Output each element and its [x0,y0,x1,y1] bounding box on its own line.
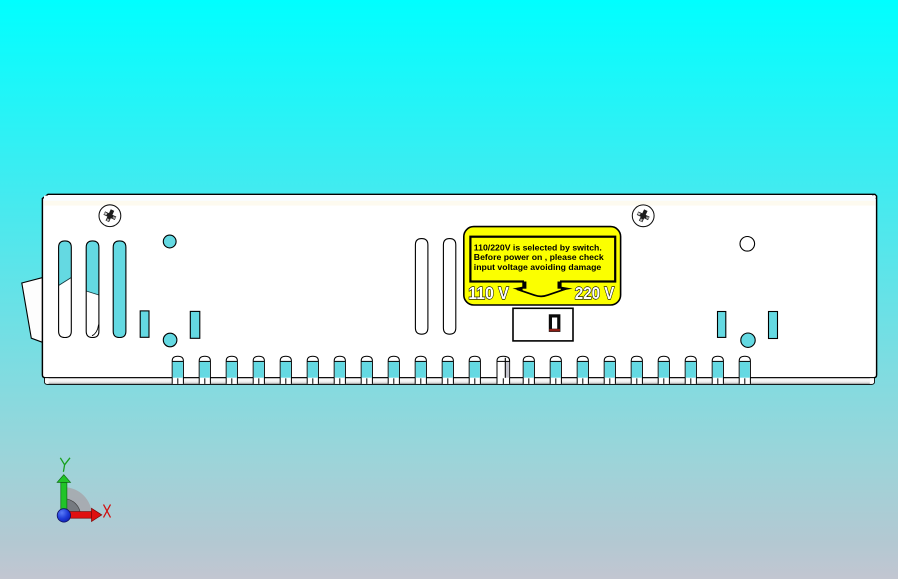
svg-text:110/220V is selected by switch: 110/220V is selected by switch. [474,242,602,252]
svg-text:110 V: 110 V [468,283,509,303]
svg-text:input voltage avoiding damage: input voltage avoiding damage [474,262,602,272]
svg-text:220 V: 220 V [575,283,615,303]
svg-text:Before power on , please check: Before power on , please check [474,252,604,262]
